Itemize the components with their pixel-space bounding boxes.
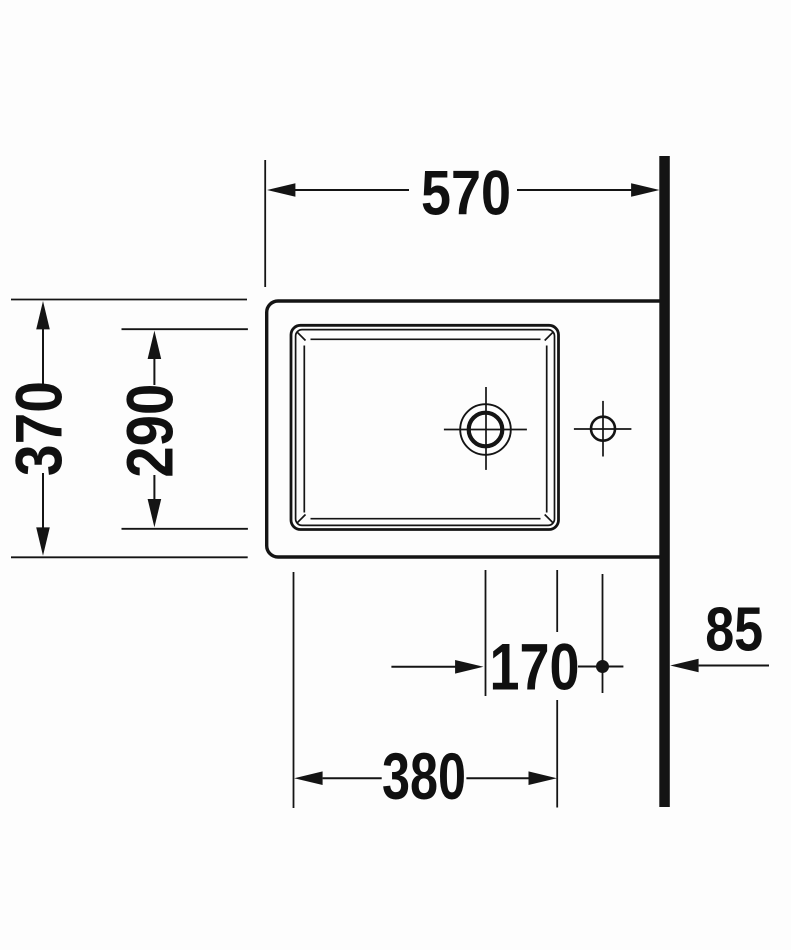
svg-text:170: 170 (490, 631, 580, 704)
svg-text:370: 370 (2, 381, 76, 476)
svg-text:380: 380 (382, 740, 466, 813)
svg-text:290: 290 (113, 384, 187, 478)
svg-text:570: 570 (421, 159, 511, 229)
svg-text:85: 85 (705, 596, 763, 665)
